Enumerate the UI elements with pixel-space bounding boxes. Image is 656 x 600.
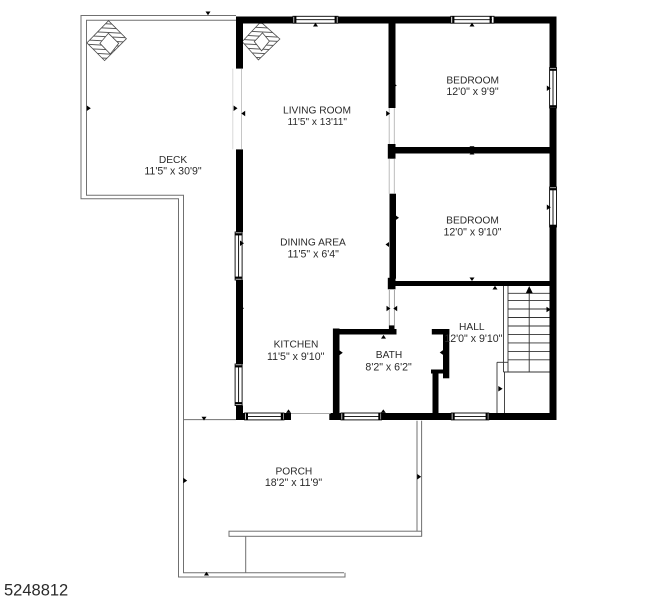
svg-text:18'2" x 11'9": 18'2" x 11'9" (265, 477, 323, 489)
svg-text:LIVING ROOM: LIVING ROOM (283, 105, 351, 116)
svg-text:BEDROOM: BEDROOM (446, 216, 499, 227)
svg-text:5248812: 5248812 (4, 582, 68, 600)
svg-text:12'0" x 9'10": 12'0" x 9'10" (443, 227, 501, 239)
svg-text:11'5" x 13'11": 11'5" x 13'11" (287, 117, 347, 128)
svg-text:8'2" x 6'2": 8'2" x 6'2" (365, 361, 412, 373)
svg-text:12'0" x 9'9": 12'0" x 9'9" (446, 86, 498, 98)
svg-text:BEDROOM: BEDROOM (446, 76, 499, 87)
svg-text:KITCHEN: KITCHEN (274, 340, 319, 351)
svg-text:HALL: HALL (459, 322, 485, 333)
svg-text:PORCH: PORCH (276, 466, 313, 477)
svg-text:11'5" x 6'4": 11'5" x 6'4" (287, 248, 339, 260)
svg-text:BATH: BATH (376, 350, 402, 361)
svg-text:DINING AREA: DINING AREA (280, 237, 346, 248)
svg-text:11'5" x 30'9": 11'5" x 30'9" (144, 166, 202, 178)
svg-text:12'0" x 9'10": 12'0" x 9'10" (444, 333, 502, 345)
svg-text:DECK: DECK (159, 155, 188, 166)
svg-text:11'5" x 9'10": 11'5" x 9'10" (267, 351, 325, 363)
